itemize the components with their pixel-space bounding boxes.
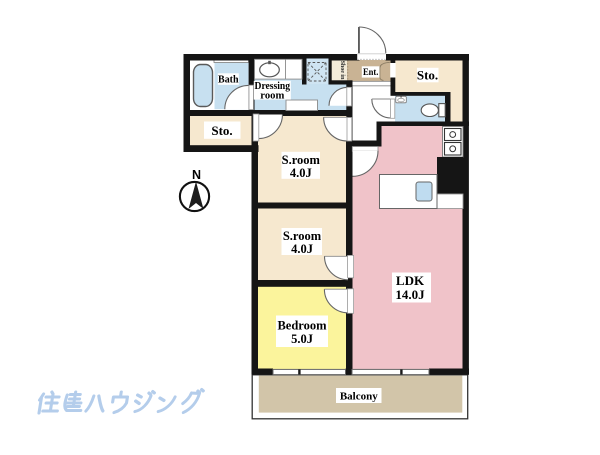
svg-text:S.room: S.room (283, 229, 322, 243)
svg-text:Bedroom: Bedroom (277, 319, 327, 333)
svg-text:Sto.: Sto. (211, 123, 232, 138)
svg-text:room: room (260, 90, 284, 101)
svg-text:Shoe in: Shoe in (339, 61, 345, 81)
svg-text:LDK: LDK (396, 273, 425, 288)
svg-text:14.0J: 14.0J (395, 287, 425, 302)
svg-text:4.0J: 4.0J (291, 242, 313, 256)
svg-text:S.room: S.room (282, 153, 321, 167)
svg-text:Sto.: Sto. (417, 67, 438, 82)
svg-text:4.0J: 4.0J (290, 166, 312, 180)
svg-text:N: N (192, 168, 201, 182)
svg-text:Ent.: Ent. (363, 67, 379, 77)
svg-text:Bath: Bath (218, 73, 239, 85)
svg-text:Balcony: Balcony (340, 390, 378, 402)
svg-text:5.0J: 5.0J (291, 332, 313, 346)
